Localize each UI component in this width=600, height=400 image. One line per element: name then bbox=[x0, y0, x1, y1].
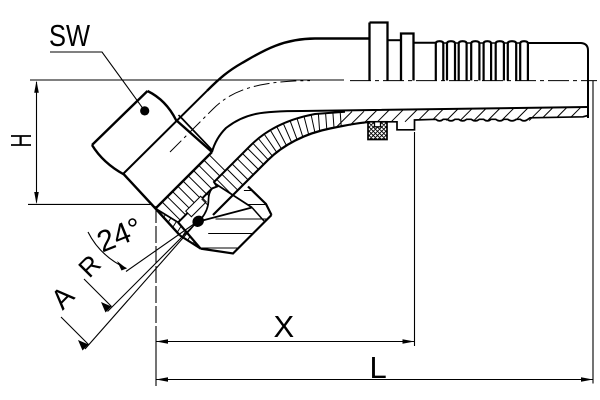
svg-text:X: X bbox=[274, 309, 295, 344]
svg-text:L: L bbox=[370, 350, 387, 385]
svg-text:SW: SW bbox=[49, 18, 91, 53]
svg-text:H: H bbox=[6, 134, 38, 148]
